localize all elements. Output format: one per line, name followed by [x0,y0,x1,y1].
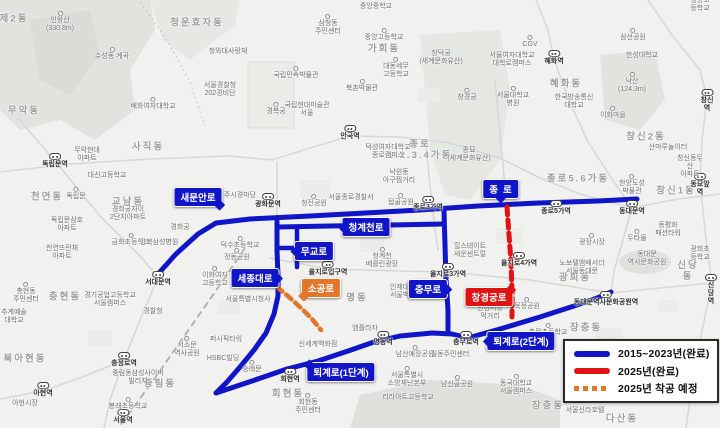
legend-swatch-red-solid [574,368,610,374]
road-label-sogongro: 소공로 [301,278,341,298]
legend-label: 2015~2023년(완료) [618,346,710,361]
legend-swatch-blue-solid [574,351,610,357]
legend-row-completed-2025: 2025년(완료) [574,364,708,379]
road-label-cheonggyecheonro: 청계천로 [342,217,391,237]
road-label-toegyero-phase1: 퇴계로(1단계) [306,362,375,382]
road-label-sejongdaero: 세종대로 [231,268,280,288]
legend-row-completed-2015-2023: 2015~2023년(완료) [574,346,708,361]
road-label-saemunanro: 새문안로 [174,187,223,207]
legend: 2015~2023년(완료) 2025년(완료) 2025년 착공 예정 [563,339,719,403]
road-label-toegyero-phase2: 퇴계로(2단계) [486,331,555,351]
seoul-road-construction-map: 제2동청운효자동사직동무악동천연동교남동가회동혜화동종로 1.2.3.4가동종로… [0,0,720,428]
legend-label: 2025년 착공 예정 [618,381,698,396]
road-label-jongno: 종로 [482,179,519,199]
road-label-changgyeonggungro: 창경궁로 [465,287,514,307]
road-label-mugyoro: 무교로 [294,241,334,261]
legend-row-planned-2025: 2025년 착공 예정 [574,381,708,396]
road-label-chungmuro: 충무로 [408,279,448,299]
legend-swatch-orange-dashed [574,386,610,391]
legend-label: 2025년(완료) [618,364,679,379]
